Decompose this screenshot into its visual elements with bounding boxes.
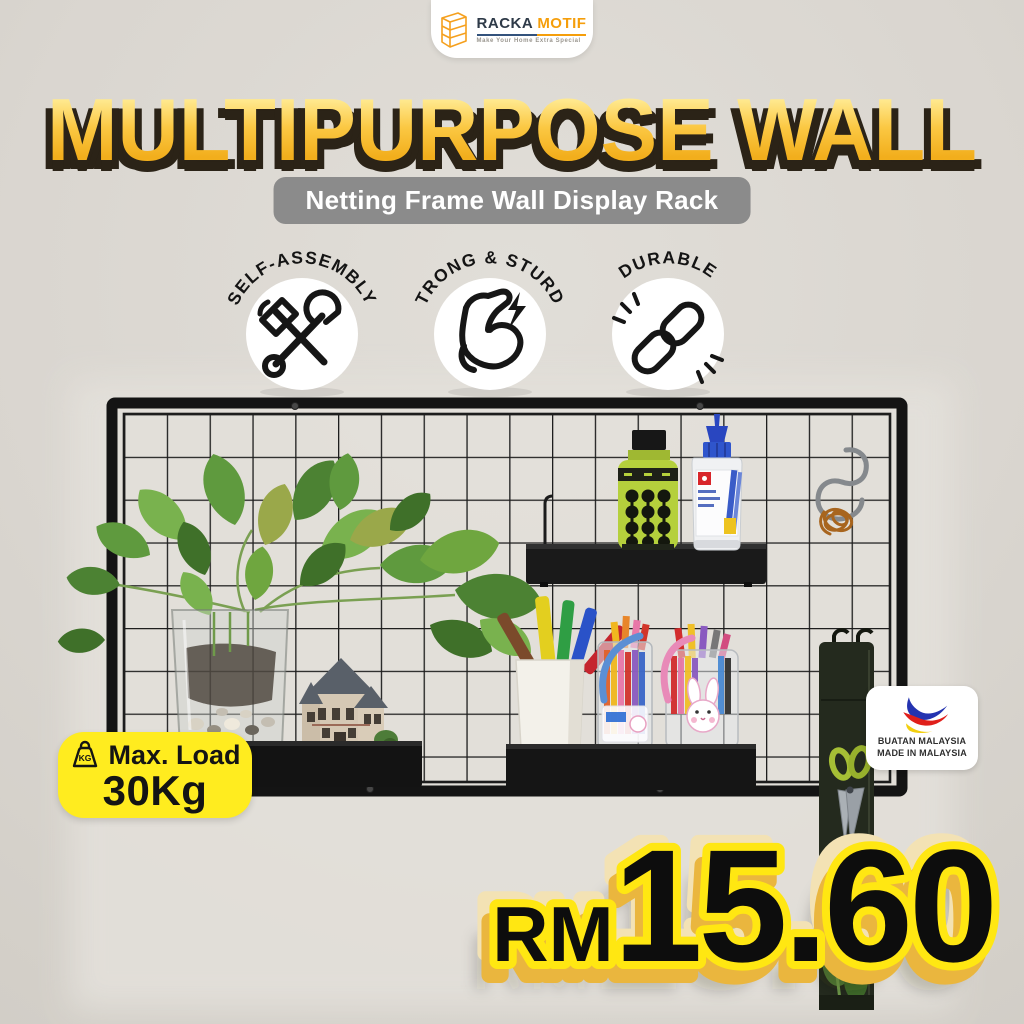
max-load-value: 30Kg xyxy=(103,771,208,811)
glass-vase xyxy=(172,610,288,746)
price-text: RM15.60 xyxy=(492,816,994,995)
feature-badge-strong-sturdy: STRONG & STURDY xyxy=(400,250,580,402)
headline-text: MULTIPURPOSE WALL xyxy=(47,80,977,179)
headline: MULTIPURPOSE WALL MULTIPURPOSE WALL MULT… xyxy=(0,74,1024,186)
feature-badge-durable: DURABLE xyxy=(578,250,758,402)
mounting-screw xyxy=(697,403,704,410)
metal-shelf-tray-middle xyxy=(506,744,756,790)
kg-weight-icon: KG xyxy=(69,739,101,771)
pen-jar-pink xyxy=(664,624,738,748)
made-in-malaysia-badge: BUATAN MALAYSIA MADE IN MALAYSIA xyxy=(866,686,978,770)
mounting-screw xyxy=(292,403,299,410)
buatan-malaysia-logo xyxy=(894,696,950,734)
subtitle-pill: Netting Frame Wall Display Rack xyxy=(274,177,751,224)
origin-line1: BUATAN MALAYSIA xyxy=(877,736,967,748)
promo-poster: RACKA MOTIF Make Your Home Extra Special… xyxy=(0,0,1024,1024)
price: RM15.60 RM15.60 RM15.60 RM15.60 RM15.60 xyxy=(398,793,1020,1015)
pen-cup xyxy=(516,660,584,748)
feature-badge-self-assembly: SELF-ASSEMBLY xyxy=(212,250,392,402)
brand-name: RACKA MOTIF xyxy=(477,15,587,32)
max-load-badge: KG Max. Load 30Kg xyxy=(58,732,252,818)
kg-icon-text: KG xyxy=(79,753,92,763)
badge-label: DURABLE xyxy=(615,250,721,282)
brand-tagline: Make Your Home Extra Special xyxy=(477,38,587,44)
origin-line2: MADE IN MALAYSIA xyxy=(877,748,967,760)
brand-divider xyxy=(477,34,587,36)
racka-motif-logo-icon xyxy=(438,10,470,48)
max-load-label: Max. Load xyxy=(108,742,240,769)
svg-text:DURABLE: DURABLE xyxy=(615,250,721,282)
brand-logo-card: RACKA MOTIF Make Your Home Extra Special xyxy=(431,0,593,58)
